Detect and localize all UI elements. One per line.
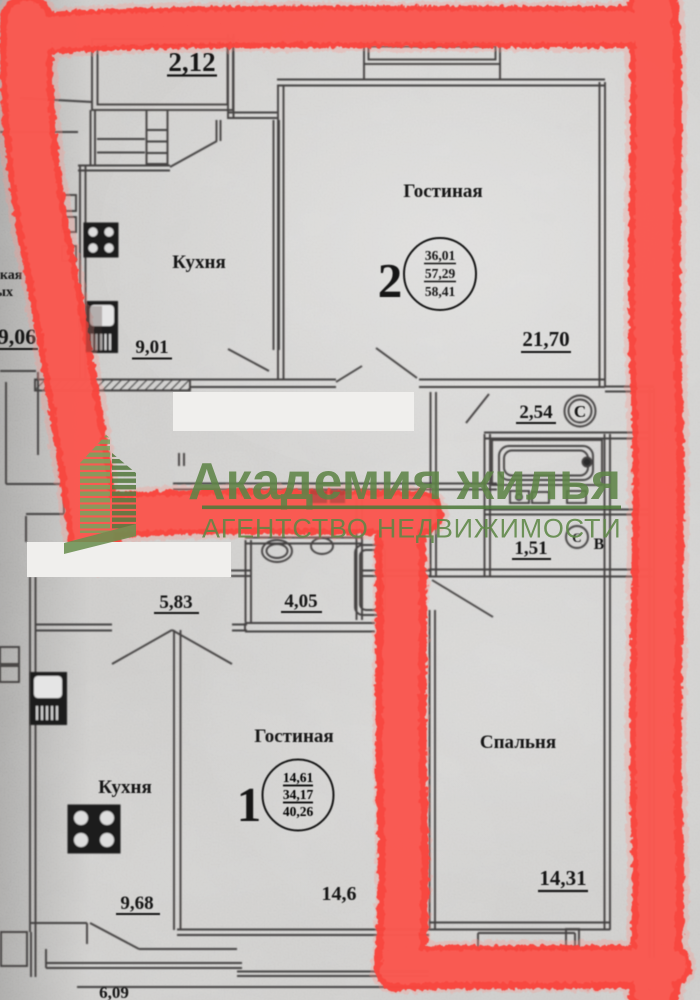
svg-text:2,54: 2,54 bbox=[519, 402, 553, 423]
svg-text:57,29: 57,29 bbox=[425, 266, 456, 281]
svg-text:14,31: 14,31 bbox=[539, 866, 586, 890]
svg-text:ых: ых bbox=[0, 285, 13, 300]
svg-text:40,26: 40,26 bbox=[283, 804, 314, 819]
svg-text:4,05: 4,05 bbox=[284, 591, 317, 612]
svg-text:Кухня: Кухня bbox=[172, 252, 226, 273]
svg-text:Академия жилья: Академия жилья bbox=[188, 453, 621, 511]
svg-text:9,01: 9,01 bbox=[135, 337, 168, 358]
svg-text:1: 1 bbox=[237, 777, 262, 832]
svg-text:21,70: 21,70 bbox=[522, 327, 569, 351]
svg-text:14,6: 14,6 bbox=[322, 883, 357, 905]
svg-text:С: С bbox=[574, 402, 586, 421]
svg-text:34,17: 34,17 bbox=[283, 787, 314, 802]
svg-text:9,68: 9,68 bbox=[120, 893, 153, 914]
svg-text:Гостиная: Гостиная bbox=[403, 181, 482, 202]
svg-text:14,61: 14,61 bbox=[283, 770, 314, 785]
svg-text:2: 2 bbox=[378, 253, 403, 308]
svg-text:6,09: 6,09 bbox=[99, 983, 129, 1000]
svg-text:Гостиная: Гостиная bbox=[254, 726, 333, 747]
svg-text:5,83: 5,83 bbox=[159, 592, 192, 613]
svg-text:АГЕНТСТВО НЕДВИЖИМОСТИ: АГЕНТСТВО НЕДВИЖИМОСТИ bbox=[202, 514, 621, 544]
svg-text:Кухня: Кухня bbox=[98, 777, 152, 798]
svg-text:Спальня: Спальня bbox=[480, 732, 556, 753]
svg-text:58,41: 58,41 bbox=[425, 284, 456, 299]
svg-text:36,01: 36,01 bbox=[425, 248, 456, 263]
